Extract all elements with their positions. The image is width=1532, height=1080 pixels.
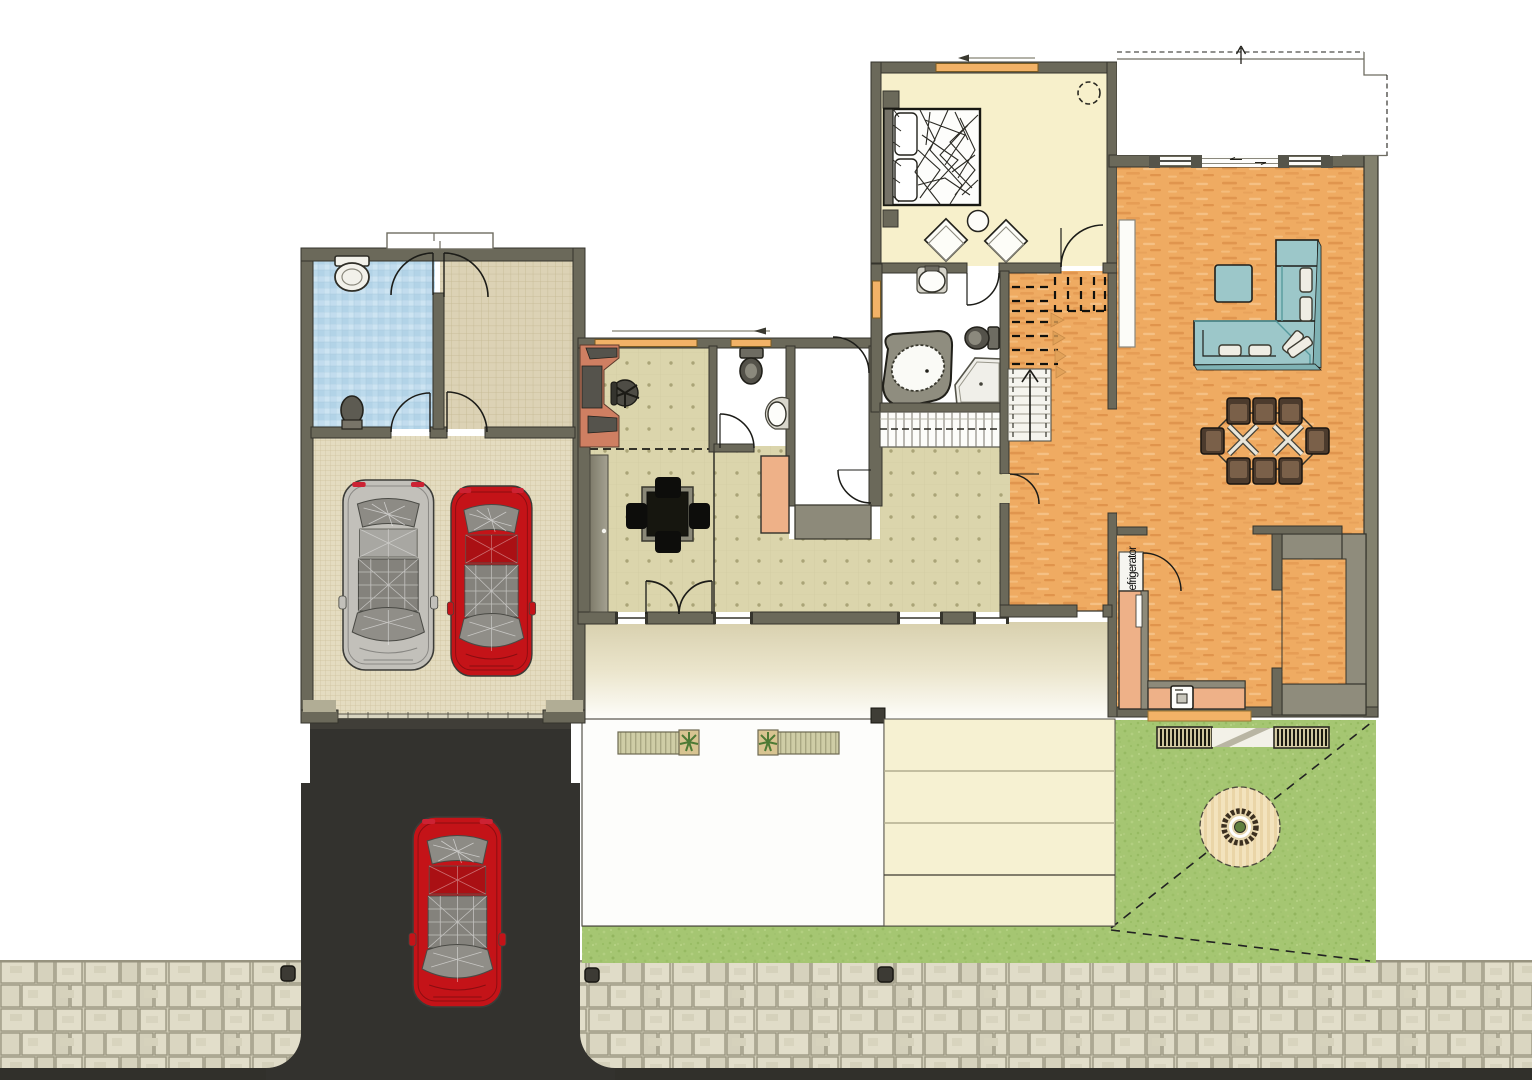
svg-text:Refrigerator: Refrigerator <box>1127 546 1139 598</box>
